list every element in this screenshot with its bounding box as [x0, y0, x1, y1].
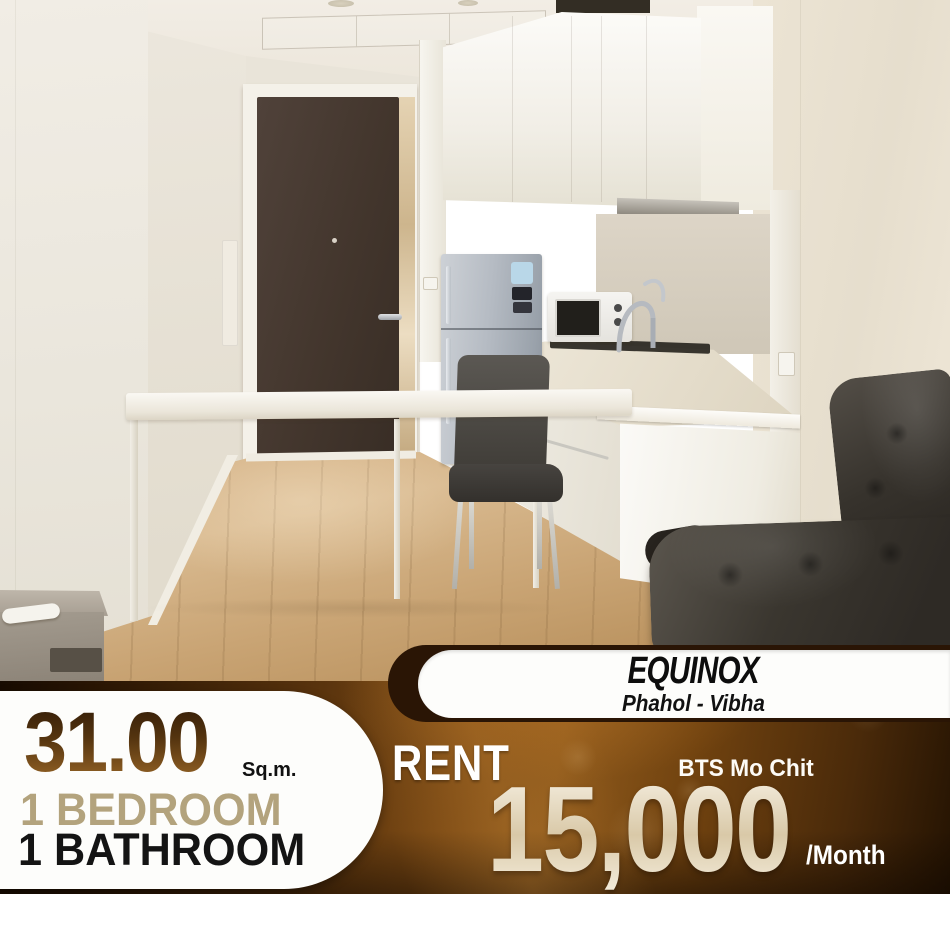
faucet-icon: [605, 270, 675, 355]
upper-kitchen-cabinets: [443, 12, 701, 208]
footer-bar: YOKNEW PROPERTY CONTACT FOR MORE DETAILS…: [0, 894, 950, 950]
area-unit: Sq.m.: [242, 759, 296, 782]
table-shadow: [140, 598, 570, 618]
refrigerator-sticker: [513, 302, 532, 313]
wall-outlet: [778, 352, 795, 376]
door-handle: [378, 314, 402, 320]
refrigerator-sticker: [511, 262, 533, 284]
project-name: EQUINOX: [627, 652, 758, 690]
property-listing-card: EQUINOX Phahol - Vibha 31.00 Sq.m. 1 BED…: [0, 0, 950, 950]
ceiling-panel-seam: [449, 14, 450, 44]
ceiling-panel-seam: [356, 16, 357, 46]
dining-chair-seat: [449, 464, 563, 502]
refrigerator-door-split: [441, 328, 542, 330]
wall-outlet: [423, 277, 438, 290]
project-banner: EQUINOX Phahol - Vibha: [418, 650, 950, 718]
tv-cabinet-shelf: [50, 648, 102, 672]
chair-leg: [537, 497, 542, 569]
ceiling-light: [328, 0, 354, 7]
refrigerator-sticker: [512, 287, 532, 300]
sofa-seat: [648, 517, 950, 660]
area-value: 31.00: [24, 700, 208, 784]
cabinet-seam: [646, 16, 647, 202]
table-leg: [130, 417, 138, 621]
chair-leg: [469, 497, 474, 569]
refrigerator-handle: [446, 266, 451, 324]
light-switch-panel: [222, 240, 238, 346]
project-location: Phahol - Vibha: [621, 690, 764, 716]
table-leg: [394, 419, 400, 599]
microwave-window: [555, 299, 601, 337]
ceiling-light: [458, 0, 478, 6]
cabinet-side-panel: [697, 6, 773, 210]
price-amount: 15,000: [487, 768, 790, 890]
dining-table: [126, 389, 632, 420]
cabinet-seam: [601, 16, 602, 202]
bathroom-count: 1 BATHROOM: [18, 827, 305, 872]
apartment-photo: [0, 0, 950, 700]
cabinet-seam: [512, 16, 513, 202]
cabinet-ceiling-gap: [556, 0, 650, 13]
price-period: /Month: [806, 842, 886, 869]
cabinet-seam: [571, 16, 572, 202]
door-peephole: [332, 238, 337, 243]
wall-seam: [15, 0, 16, 640]
